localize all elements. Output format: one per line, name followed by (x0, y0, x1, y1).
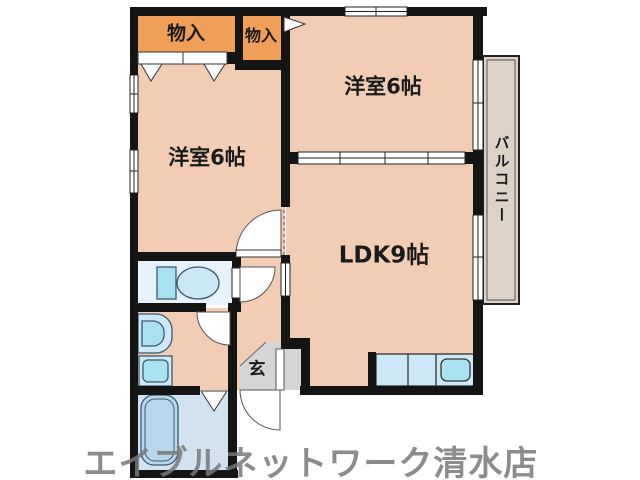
entrance-label: 玄 (249, 362, 266, 379)
ldk-label: LDK9帖 (339, 245, 430, 268)
window-ldk-balcony (473, 215, 483, 300)
opening-hall-ldk (281, 263, 290, 296)
closet-large-label: 物入 (167, 25, 205, 44)
agency-watermark: エイブルネットワーク清水店 (83, 436, 538, 480)
window-room1-balcony (473, 60, 483, 150)
balcony-label: バルコニー (494, 135, 509, 225)
room2-label: 洋室6帖 (168, 148, 246, 169)
floors (134, 12, 519, 472)
room1-label: 洋室6帖 (344, 77, 422, 98)
toilet-icon (157, 267, 219, 299)
floorplan: 物入 物入 洋室6帖 洋室6帖 LDK9帖 玄 バルコニー エイブルネットワーク… (0, 0, 640, 480)
washing-machine-icon (139, 356, 172, 386)
window-room2-left-lower (130, 150, 138, 193)
window-room2-left-upper (130, 75, 138, 113)
kitchen-counter-icon (376, 354, 477, 386)
closet-small-label: 物入 (245, 28, 277, 44)
floorplan-drawing (0, 0, 640, 480)
window-room1-top (345, 7, 407, 16)
washbasin-icon (138, 314, 172, 353)
sliding-door-room1-ldk (298, 152, 465, 164)
